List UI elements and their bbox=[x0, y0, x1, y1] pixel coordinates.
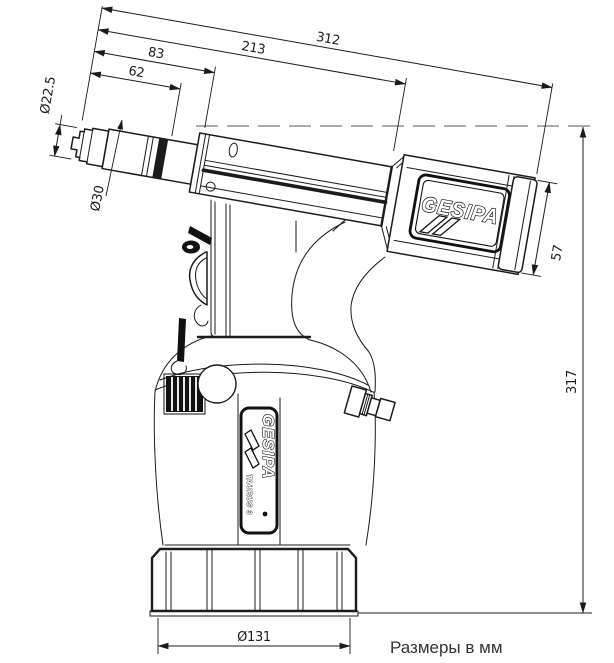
body-round-port bbox=[198, 365, 236, 403]
riveter-dimension-drawing: GESIPA 62 83 213 312 Ø22.5 57 bbox=[0, 0, 614, 663]
dim-label-tail-diameter: 57 bbox=[549, 244, 567, 262]
dim-label-nose-length: 83 bbox=[147, 45, 165, 63]
trigger-knob-hole bbox=[187, 245, 194, 249]
base-cap-outline bbox=[152, 549, 356, 611]
dim-label-tip-diameter: Ø22.5 bbox=[38, 75, 59, 115]
front-clip-foot bbox=[171, 361, 186, 375]
technical-drawing-page: GESIPA 62 83 213 312 Ø22.5 57 bbox=[0, 0, 614, 663]
caption-units: Размеры в мм bbox=[390, 638, 503, 657]
shoulder-right-curve bbox=[310, 340, 371, 392]
body-logo-dot bbox=[263, 512, 268, 517]
dim-label-overall-height: 317 bbox=[565, 370, 580, 394]
trigger-assembly bbox=[171, 226, 212, 375]
riveter-barrel-assembly: GESIPA 62 83 213 312 Ø22.5 57 bbox=[25, 0, 597, 282]
base-cap bbox=[150, 549, 358, 616]
base-cap-ribs bbox=[166, 550, 342, 611]
dim-line-213 bbox=[98, 30, 405, 84]
grip-center-seams bbox=[226, 204, 230, 336]
riveter-handle-and-body: GESIPA TAURUS 3 bbox=[150, 200, 396, 616]
body-logo-text: GESIPA bbox=[259, 414, 276, 479]
tip-diameter-leader bbox=[60, 115, 62, 125]
front-clip-bar bbox=[177, 318, 186, 362]
dim-label-sleeve-diameter: Ø30 bbox=[88, 184, 108, 212]
nose-tip bbox=[69, 125, 109, 166]
handle-rear-curve-inner bbox=[292, 222, 345, 340]
dim-line-312 bbox=[102, 8, 552, 87]
body-left-edge bbox=[154, 392, 163, 545]
body-model-text: TAURUS 3 bbox=[245, 474, 254, 515]
front-housing bbox=[189, 133, 391, 226]
handle-rear-tick bbox=[333, 220, 345, 231]
handle-rear-curve-outer bbox=[351, 257, 385, 392]
trigger-lower-hook bbox=[194, 305, 208, 326]
dim-line-tip-diameter bbox=[55, 125, 61, 157]
grip-front-edge bbox=[211, 200, 217, 337]
dim-label-sleeve-length: 62 bbox=[127, 64, 145, 82]
dim-label-base-diameter: Ø131 bbox=[237, 630, 271, 645]
air-fitting bbox=[344, 386, 396, 426]
